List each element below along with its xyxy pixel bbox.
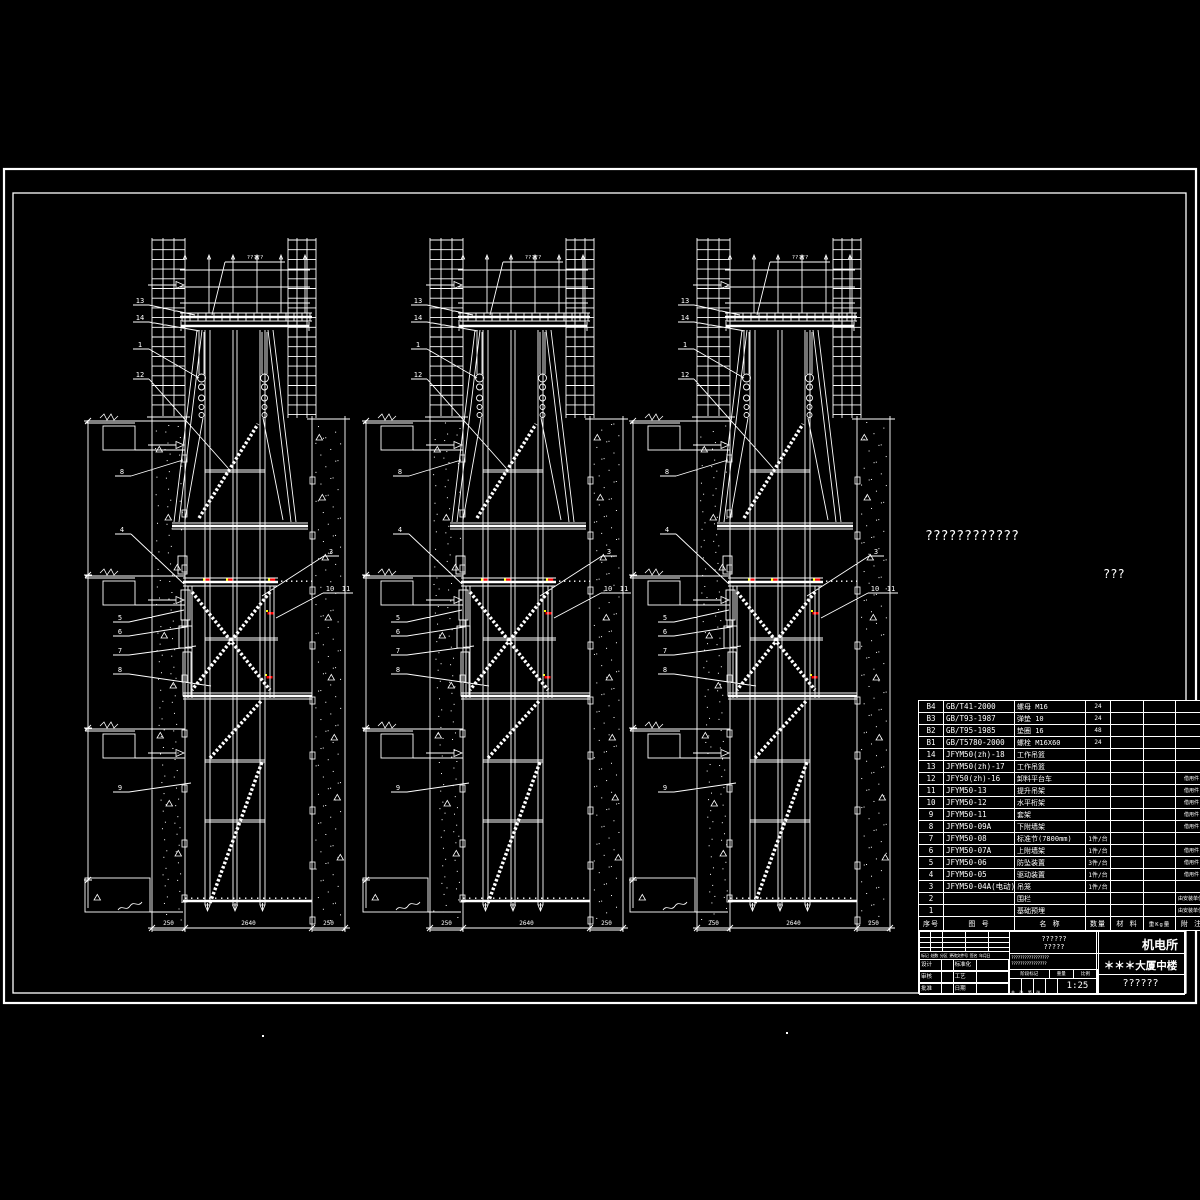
wall-tie (727, 840, 732, 847)
concrete-dot (159, 661, 160, 662)
drawing-lines (378, 569, 396, 575)
concrete-dot (716, 534, 717, 535)
part-cell: 1件/台 (1086, 845, 1111, 857)
part-cell: 上附墙架 (1015, 845, 1086, 857)
drawing-text: 11 (342, 585, 350, 593)
deck-dot (269, 898, 270, 899)
concrete-dot (323, 541, 324, 542)
pulley (477, 405, 482, 410)
concrete-dot (172, 574, 173, 575)
concrete-dot (861, 485, 862, 486)
concrete-dot (711, 793, 712, 794)
floating-note-1: ???????????? (925, 529, 1019, 544)
concrete-dot (724, 897, 725, 898)
concrete-dot (878, 813, 879, 814)
part-cell (1144, 893, 1176, 905)
foundation-box (363, 878, 428, 912)
wall-tie (855, 532, 860, 539)
concrete-dot (886, 721, 887, 722)
concrete-dot (596, 653, 597, 654)
concrete-dot (596, 447, 597, 448)
concrete-dot (866, 732, 867, 733)
concrete-dot (158, 551, 159, 552)
concrete-dot (594, 757, 595, 758)
concrete-dot (611, 895, 612, 896)
parts-header-row: 序号图 号名 称数量材 料重Kg量附 注 (919, 917, 1200, 931)
concrete-dot (439, 762, 440, 763)
part-cell: 11 (919, 785, 944, 797)
marker-yellow (266, 610, 268, 612)
concrete-dot (451, 757, 452, 758)
drawing-lines (325, 614, 332, 620)
concrete-dot (160, 626, 161, 627)
deck-dot (808, 898, 809, 899)
concrete-dot (165, 885, 166, 886)
concrete-dot (609, 867, 610, 868)
deck-dot (499, 898, 500, 899)
concrete-dot (881, 635, 882, 636)
concrete-dot (171, 656, 172, 657)
concrete-dot (866, 422, 867, 423)
concrete-dot (167, 443, 168, 444)
scale-value: 1:25 (1058, 979, 1098, 994)
deck-dot (523, 898, 524, 899)
concrete-dot (599, 740, 600, 741)
part-cell (1086, 797, 1111, 809)
concrete-dot (614, 717, 615, 718)
deck-dot (487, 898, 488, 899)
concrete-dot (175, 741, 176, 742)
concrete-dot (874, 594, 875, 595)
concrete-dot (881, 473, 882, 474)
concrete-dot (618, 832, 619, 833)
concrete-dot (604, 487, 605, 488)
concrete-dot (335, 432, 336, 433)
concrete-dot (713, 431, 714, 432)
concrete-dot (712, 885, 713, 886)
part-cell: 3件/台 (1086, 857, 1111, 869)
drawing-text: 4 (398, 526, 402, 534)
concrete-dot (316, 765, 317, 766)
drawing-lines (702, 732, 709, 738)
concrete-dot (320, 616, 321, 617)
drawing-lines (174, 564, 181, 570)
drawing-lines (710, 514, 717, 520)
concrete-dot (715, 506, 716, 507)
part-cell: 6 (919, 845, 944, 857)
part-cell (1144, 797, 1176, 809)
wall-tie (310, 587, 315, 594)
wall-tie (855, 752, 860, 759)
drawing-lines (612, 794, 619, 800)
part-cell (1144, 713, 1176, 725)
part-cell: 1件/台 (1086, 869, 1111, 881)
concrete-dot (179, 891, 180, 892)
concrete-dot (167, 896, 168, 897)
scale-empty-cell (1046, 979, 1058, 994)
deck-dot (851, 581, 852, 582)
marker-red (812, 676, 818, 679)
concrete-dot (340, 708, 341, 709)
concrete-dot (318, 500, 319, 501)
concrete-dot (168, 599, 169, 600)
concrete-dot (437, 624, 438, 625)
part-cell: 12 (919, 773, 944, 785)
concrete-dot (167, 460, 168, 461)
concrete-dot (721, 730, 722, 731)
concrete-dot (333, 506, 334, 507)
concrete-dot (436, 595, 437, 596)
concrete-dot (861, 543, 862, 544)
part-cell: 24 (1086, 713, 1111, 725)
concrete-dot (705, 742, 706, 743)
concrete-dot (338, 783, 339, 784)
drawing-lines (719, 564, 726, 570)
concrete-dot (159, 598, 160, 599)
concrete-dot (445, 859, 446, 860)
part-cell: 螺栓 M16X60 (1015, 737, 1086, 749)
concrete-dot (181, 919, 182, 920)
concrete-dot (333, 639, 334, 640)
drawing-text: 250 (441, 920, 452, 927)
concrete-dot (708, 799, 709, 800)
sign-cell: 设计 (920, 960, 942, 970)
wall-tie (310, 642, 315, 649)
sign-cell (942, 960, 954, 970)
concrete-dot (711, 856, 712, 857)
concrete-dot (616, 613, 617, 614)
pulley (806, 374, 814, 382)
concrete-dot (601, 901, 602, 902)
pulley (199, 413, 204, 418)
concrete-dot (596, 682, 597, 683)
part-cell: JFYM50-11 (944, 809, 1015, 821)
deck-dot (291, 581, 292, 582)
part-cell: 8 (919, 821, 944, 833)
part-cell: 3 (919, 881, 944, 893)
concrete-dot (722, 759, 723, 760)
concrete-dot (871, 772, 872, 773)
concrete-dot (703, 557, 704, 558)
concrete-dot (883, 692, 884, 693)
code-box: ?????? ????? (1009, 931, 1099, 954)
drawing-text: 3 (874, 548, 878, 556)
drawing-lines (645, 569, 663, 575)
concrete-dot (315, 575, 316, 576)
pulley (744, 395, 750, 401)
parts-header-cell: 名 称 (1015, 917, 1086, 931)
part-cell: 弹垫 10 (1015, 713, 1086, 725)
deck-dot (505, 898, 506, 899)
code-line-2: ????? (1010, 943, 1098, 951)
concrete-dot (723, 787, 724, 788)
drawing-lines (334, 794, 341, 800)
wall-tie (588, 697, 593, 704)
concrete-dot (340, 576, 341, 577)
wall-tie (310, 532, 315, 539)
drawing-text: 12 (414, 371, 422, 379)
part-cell: 驱动装置 (1015, 869, 1086, 881)
deck-dot (547, 898, 548, 899)
concrete-dot (437, 514, 438, 515)
concrete-dot (722, 695, 723, 696)
concrete-dot (160, 690, 161, 691)
concrete-dot (328, 759, 329, 760)
part-row: 11JFYM50-13提升吊架借用件 (919, 785, 1200, 797)
concrete-dot (611, 498, 612, 499)
concrete-dot (318, 662, 319, 663)
concrete-dot (714, 523, 715, 524)
drawing-text: 5 (118, 614, 122, 622)
concrete-dot (717, 690, 718, 691)
part-cell: 2 (919, 893, 944, 905)
concrete-dot (166, 478, 167, 479)
concrete-dot (599, 901, 600, 902)
concrete-dot (454, 704, 455, 705)
deck-dot (263, 898, 264, 899)
part-cell: 由安装单位定 (1176, 893, 1200, 905)
concrete-dot (443, 848, 444, 849)
drawing-text: 11 (887, 585, 895, 593)
concrete-dot (435, 549, 436, 550)
concrete-dot (717, 627, 718, 628)
floor-slab (648, 581, 680, 605)
concrete-dot (866, 761, 867, 762)
part-row: B1GB/T5780-2000螺栓 M16X6024 (919, 737, 1200, 749)
concrete-dot (323, 438, 324, 439)
sign-cell (942, 972, 954, 982)
part-cell: 提升吊架 (1015, 785, 1086, 797)
drawing-lines (316, 434, 323, 440)
drawing-text: 7 (396, 647, 400, 655)
note-line-2: ???????????????? (1011, 962, 1097, 968)
concrete-dot (170, 627, 171, 628)
drawing-lines (192, 424, 270, 903)
concrete-dot (611, 424, 612, 425)
concrete-dot (162, 655, 163, 656)
concrete-dot (178, 862, 179, 863)
part-cell (1144, 905, 1176, 917)
concrete-dot (713, 541, 714, 542)
drawing-lines (434, 446, 441, 452)
concrete-dot (616, 878, 617, 879)
part-cell: 1 (919, 905, 944, 917)
concrete-dot (340, 914, 341, 915)
drawing-lines (100, 722, 118, 728)
drawing-lines (720, 850, 727, 856)
concrete-dot (175, 805, 176, 806)
concrete-dot (709, 782, 710, 783)
pulley (540, 413, 545, 418)
drawing-text: 7 (663, 647, 667, 655)
concrete-dot (325, 599, 326, 600)
drawing-lines (157, 732, 164, 738)
concrete-dot (320, 455, 321, 456)
concrete-dot (618, 700, 619, 701)
foundation-box (85, 878, 150, 912)
part-cell: GB/T41-2000 (944, 701, 1015, 713)
concrete-dot (876, 462, 877, 463)
hoist-machinery (179, 626, 192, 648)
concrete-dot (613, 688, 614, 689)
stage-cell: 阶段标记 (1010, 970, 1050, 978)
concrete-dot (869, 847, 870, 848)
part-cell: 24 (1086, 701, 1111, 713)
concrete-dot (445, 423, 446, 424)
concrete-dot (869, 818, 870, 819)
pulley (199, 405, 204, 410)
concrete-dot (613, 820, 614, 821)
part-cell: 工作吊篮 (1015, 761, 1086, 773)
concrete-dot (883, 531, 884, 532)
pulley (744, 413, 749, 418)
drawing-lines (362, 238, 631, 932)
concrete-dot (162, 701, 163, 702)
deck-dot (856, 581, 857, 582)
concrete-dot (606, 441, 607, 442)
concrete-dot (316, 633, 317, 634)
part-row: 9JFYM50-11套架借用件 (919, 809, 1200, 821)
drawing-number: ?????? (1096, 974, 1185, 995)
concrete-dot (721, 776, 722, 777)
concrete-dot (861, 881, 862, 882)
concrete-dot (170, 563, 171, 564)
parts-list-table: B4GB/T41-2000螺母 M1624B3GB/T93-1987弹垫 102… (918, 700, 1200, 931)
deck-dot (306, 581, 307, 582)
concrete-dot (719, 655, 720, 656)
part-cell: 套架 (1015, 809, 1086, 821)
concrete-dot (886, 559, 887, 560)
part-row: 8JFYM50-09A下附墙架借用件 (919, 821, 1200, 833)
concrete-dot (705, 696, 706, 697)
concrete-dot (179, 827, 180, 828)
concrete-dot (709, 891, 710, 892)
part-cell: 借用件 (1176, 821, 1200, 833)
floor-slab (103, 734, 135, 758)
concrete-dot (613, 585, 614, 586)
concrete-dot (861, 675, 862, 676)
concrete-dot (608, 441, 609, 442)
drawing-lines (711, 800, 718, 806)
concrete-dot (441, 837, 442, 838)
drawing-lines (443, 514, 450, 520)
drawing-lines (609, 734, 616, 740)
concrete-dot (160, 753, 161, 754)
sign-cell (977, 972, 1009, 982)
cad-drawing-canvas: ?????25026402501314112845678931011?????2… (0, 0, 1200, 1200)
concrete-dot (606, 545, 607, 546)
part-cell: 借用件 (1176, 785, 1200, 797)
concrete-dot (609, 705, 610, 706)
concrete-dot (453, 831, 454, 832)
sign-cell (977, 984, 1009, 994)
deck-dot (233, 898, 234, 899)
concrete-dot (886, 824, 887, 825)
concrete-dot (171, 610, 172, 611)
part-cell (1144, 809, 1176, 821)
concrete-dot (182, 512, 183, 513)
concrete-dot (726, 472, 727, 473)
part-cell: 标准节(7800mm) (1015, 833, 1086, 845)
deck-dot (796, 898, 797, 899)
deck-dot (814, 898, 815, 899)
concrete-dot (169, 581, 170, 582)
concrete-dot (167, 524, 168, 525)
concrete-dot (864, 865, 865, 866)
drawing-lines (615, 854, 622, 860)
concrete-dot (608, 809, 609, 810)
drawing-lines (453, 850, 460, 856)
concrete-dot (702, 511, 703, 512)
concrete-dot (323, 615, 324, 616)
concrete-dot (441, 883, 442, 884)
concrete-dot (604, 855, 605, 856)
project-name: ＊＊＊大厦中楼 (1096, 953, 1185, 975)
drawing-text: 13 (681, 297, 689, 305)
concrete-dot (338, 886, 339, 887)
concrete-dot (866, 600, 867, 601)
deck-dot (296, 581, 297, 582)
concrete-dot (434, 584, 435, 585)
drawing-text: 6 (396, 628, 400, 636)
part-cell (1111, 701, 1144, 713)
concrete-dot (864, 674, 865, 675)
stage-cell: 比例 (1074, 970, 1098, 978)
concrete-dot (440, 681, 441, 682)
concrete-dot (164, 776, 165, 777)
concrete-dot (323, 644, 324, 645)
concrete-dot (606, 809, 607, 810)
concrete-dot (719, 638, 720, 639)
concrete-dot (878, 445, 879, 446)
concrete-dot (725, 862, 726, 863)
concrete-dot (434, 503, 435, 504)
concrete-dot (439, 588, 440, 589)
concrete-dot (323, 512, 324, 513)
concrete-dot (440, 744, 441, 745)
drawing-text: 9 (663, 784, 667, 792)
part-cell (1086, 785, 1111, 797)
wall-tie (855, 697, 860, 704)
concrete-dot (604, 826, 605, 827)
part-row: 12JFY50(zh)-16卸料平台车借用件 (919, 773, 1200, 785)
deck-dot (203, 898, 204, 899)
drawing-lines (372, 894, 379, 900)
concrete-dot (886, 456, 887, 457)
concrete-dot (315, 840, 316, 841)
concrete-dot (886, 853, 887, 854)
concrete-dot (701, 546, 702, 547)
stray-mark (786, 1032, 788, 1034)
concrete-dot (712, 839, 713, 840)
deck-dot (730, 898, 731, 899)
floor-slab (381, 734, 413, 758)
concrete-dot (335, 696, 336, 697)
part-cell (1111, 905, 1144, 917)
concrete-dot (443, 784, 444, 785)
floor-slab (103, 581, 135, 605)
concrete-dot (449, 508, 450, 509)
part-cell: 围栏 (1015, 893, 1086, 905)
wall-tie (460, 785, 465, 792)
part-cell: 吊笼 (1015, 881, 1086, 893)
concrete-dot (702, 529, 703, 530)
part-cell (1176, 749, 1200, 761)
concrete-dot (700, 500, 701, 501)
concrete-dot (618, 596, 619, 597)
concrete-dot (608, 573, 609, 574)
concrete-dot (864, 600, 865, 601)
